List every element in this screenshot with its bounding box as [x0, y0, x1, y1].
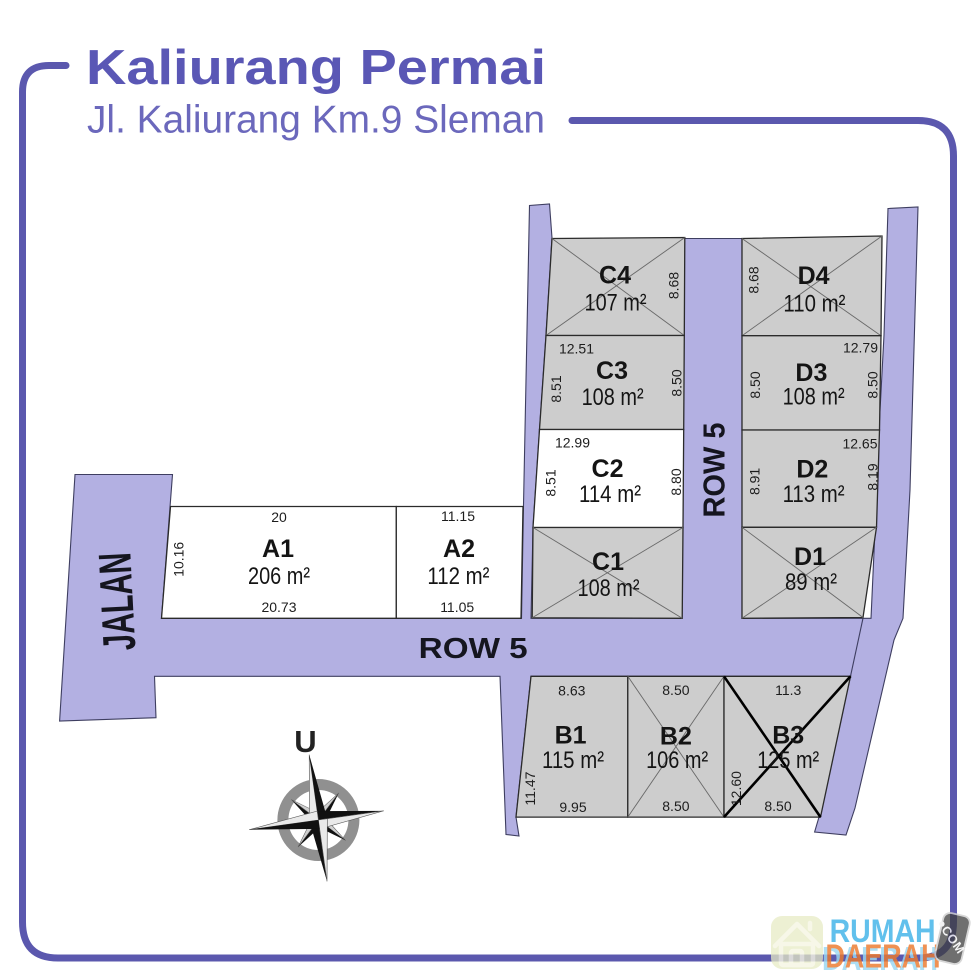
- svg-text:DAERAH: DAERAH: [826, 939, 941, 976]
- svg-text:B1: B1: [555, 721, 587, 749]
- svg-text:20.73: 20.73: [261, 599, 296, 615]
- svg-text:106 m²: 106 m²: [646, 747, 708, 774]
- svg-text:8.50: 8.50: [669, 369, 685, 396]
- svg-text:115 m²: 115 m²: [542, 747, 604, 774]
- svg-text:ROW 5: ROW 5: [419, 633, 528, 665]
- svg-text:8.50: 8.50: [662, 798, 689, 814]
- svg-text:ROW 5: ROW 5: [697, 423, 732, 518]
- svg-text:110 m²: 110 m²: [783, 290, 845, 317]
- svg-text:8.80: 8.80: [668, 468, 684, 495]
- svg-text:9.95: 9.95: [559, 799, 586, 815]
- svg-text:C1: C1: [592, 548, 624, 576]
- svg-text:11.05: 11.05: [440, 599, 474, 615]
- svg-text:8.50: 8.50: [764, 798, 791, 814]
- svg-text:12.99: 12.99: [555, 435, 590, 451]
- svg-text:12.79: 12.79: [843, 340, 878, 356]
- svg-text:8.50: 8.50: [747, 371, 763, 398]
- svg-text:12.65: 12.65: [842, 436, 877, 452]
- svg-text:C3: C3: [596, 357, 628, 385]
- svg-text:10.16: 10.16: [171, 542, 187, 577]
- svg-text:8.51: 8.51: [543, 469, 559, 496]
- svg-text:107 m²: 107 m²: [585, 290, 647, 317]
- svg-text:8.68: 8.68: [746, 266, 762, 293]
- svg-text:Jl. Kaliurang Km.9 Sleman: Jl. Kaliurang Km.9 Sleman: [87, 99, 545, 142]
- svg-text:8.50: 8.50: [864, 371, 880, 398]
- svg-text:11.3: 11.3: [775, 682, 801, 698]
- svg-text:Kaliurang Permai: Kaliurang Permai: [86, 41, 546, 95]
- svg-text:108 m²: 108 m²: [582, 384, 644, 411]
- svg-text:D1: D1: [794, 543, 826, 571]
- svg-text:8.91: 8.91: [746, 468, 762, 495]
- svg-text:C4: C4: [599, 262, 631, 290]
- svg-text:D2: D2: [796, 456, 828, 484]
- svg-text:B3: B3: [772, 722, 804, 750]
- svg-text:JALAN: JALAN: [88, 551, 145, 652]
- svg-text:A1: A1: [262, 535, 294, 563]
- svg-text:20: 20: [271, 509, 287, 525]
- svg-text:12.51: 12.51: [559, 341, 594, 357]
- svg-text:8.19: 8.19: [865, 463, 881, 490]
- svg-text:8.50: 8.50: [662, 682, 689, 698]
- svg-text:8.63: 8.63: [558, 683, 585, 699]
- svg-text:89 m²: 89 m²: [785, 569, 837, 596]
- svg-text:C2: C2: [592, 455, 624, 483]
- svg-text:U: U: [294, 724, 316, 759]
- svg-text:125 m²: 125 m²: [757, 747, 819, 774]
- svg-text:112 m²: 112 m²: [427, 563, 489, 590]
- svg-text:8.51: 8.51: [548, 375, 564, 402]
- svg-text:11.15: 11.15: [441, 508, 475, 524]
- svg-text:206 m²: 206 m²: [248, 563, 310, 590]
- svg-text:12.60: 12.60: [728, 771, 744, 806]
- svg-text:108 m²: 108 m²: [578, 575, 640, 602]
- svg-text:113 m²: 113 m²: [783, 481, 845, 508]
- svg-text:D4: D4: [798, 262, 830, 290]
- svg-text:A2: A2: [443, 535, 475, 563]
- svg-text:8.68: 8.68: [666, 272, 682, 299]
- svg-text:11.47: 11.47: [522, 771, 538, 805]
- svg-text:114 m²: 114 m²: [579, 481, 641, 508]
- svg-text:108 m²: 108 m²: [783, 384, 845, 411]
